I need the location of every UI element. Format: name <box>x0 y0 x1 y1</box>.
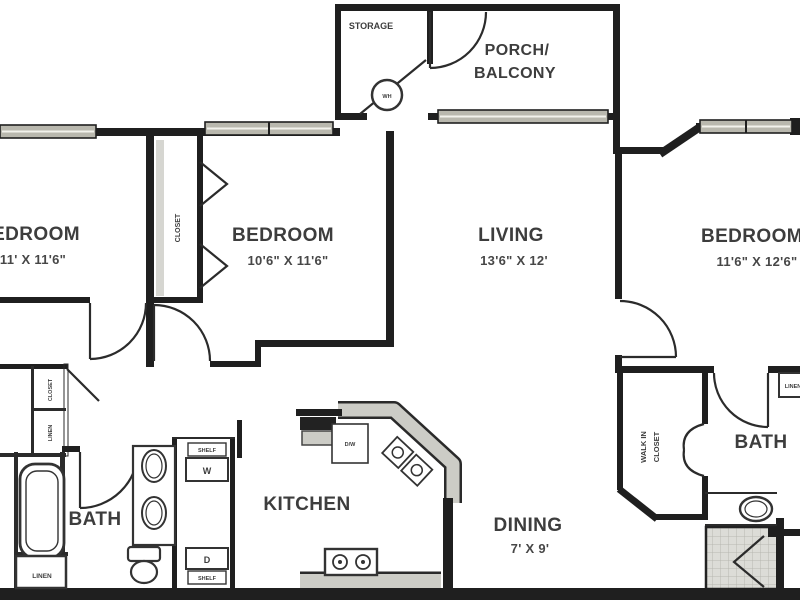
bedroom-middle-label: BEDROOM <box>232 225 334 246</box>
stove <box>325 549 377 575</box>
floorplan-canvas: WH LINEN SHELF <box>0 0 800 600</box>
bath-left-label: BATH <box>69 509 122 530</box>
dining-label: DINING <box>494 515 563 536</box>
refrigerator <box>300 417 336 445</box>
porch-label-line2: BALCONY <box>474 65 556 82</box>
toilet-left <box>128 547 160 583</box>
walkin-closet-label-line1: WALK IN <box>639 431 648 463</box>
shelf-top-label: SHELF <box>198 448 217 454</box>
bedroom-left-label: BEDROOM <box>0 224 80 245</box>
bedroom-right-label: BEDROOM <box>701 226 800 247</box>
shower-tile-grid <box>706 527 778 589</box>
bedroom-closet-label: CLOSET <box>175 213 182 242</box>
bedroom-right-dims: 11'6" X 12'6" <box>717 254 798 269</box>
water-heater: WH <box>372 80 402 110</box>
vanity-left <box>133 446 175 545</box>
living-dims: 13'6" X 12' <box>480 253 548 268</box>
linen-right-label: LINEN <box>785 384 800 390</box>
window-bedroom-right <box>700 120 792 133</box>
dishwasher: D/W <box>332 424 368 463</box>
entry-closet-label: CLOSET <box>48 378 54 401</box>
entry-linen-label: LINEN <box>48 425 54 442</box>
water-heater-label: WH <box>382 94 391 100</box>
bathtub <box>20 464 64 558</box>
linen-left-label: LINEN <box>32 573 52 580</box>
floorplan-svg: WH LINEN SHELF <box>0 0 800 600</box>
walkin-closet-label-line2: CLOSET <box>652 431 661 462</box>
kitchen-label: KITCHEN <box>263 494 350 515</box>
dishwasher-label: D/W <box>345 442 357 448</box>
bedroom-middle-dims: 10'6" X 11'6" <box>248 253 329 268</box>
porch-label-line1: PORCH/ <box>485 42 550 59</box>
closet-rod <box>156 140 164 296</box>
washer-label: W <box>203 466 212 476</box>
shelf-bottom-label: SHELF <box>198 576 217 582</box>
sliding-door-porch <box>438 110 608 123</box>
linen-cabinet-left: LINEN <box>16 556 66 588</box>
storage-label: STORAGE <box>349 21 393 31</box>
dining-dims: 7' X 9' <box>511 541 550 556</box>
shower-stall <box>706 527 778 589</box>
bath-right-label: BATH <box>735 432 788 453</box>
window-bedroom-middle <box>205 122 333 135</box>
window-bedroom-left <box>0 125 96 138</box>
bedroom-left-dims: 11' X 11'6" <box>0 252 66 267</box>
living-label: LIVING <box>478 225 544 246</box>
linen-cabinet-right: LINEN <box>779 373 800 397</box>
dryer-label: D <box>204 555 211 565</box>
